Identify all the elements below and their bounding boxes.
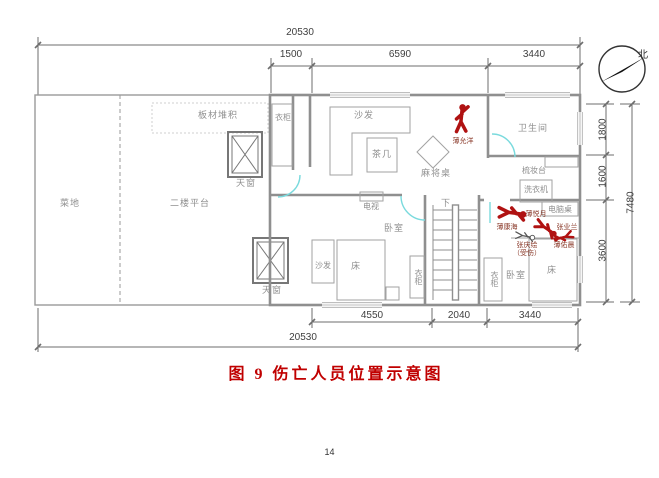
- north-label: 北: [638, 46, 648, 61]
- room-label-bathroom: 卫生间: [503, 123, 563, 133]
- dim-right-total: 7480: [626, 183, 637, 223]
- dim-bottom-total: 20530: [273, 332, 333, 343]
- dim-right-seg-1: 1800: [598, 110, 609, 150]
- skylight-top: [228, 132, 262, 177]
- page-number: 14: [0, 447, 659, 457]
- casualty-name-right: 薄佑晨: [546, 242, 582, 250]
- casualty-name-lying-below: 薄康海: [489, 224, 525, 232]
- room-label-bedroom-left: 卧室: [374, 223, 414, 233]
- label-board-pile: 板材堆积: [188, 110, 248, 120]
- casualty-name-standing: 薄允洋: [441, 138, 485, 146]
- room-label-platform: 二楼平台: [160, 198, 220, 208]
- label-mahjong-table: 麻将桌: [411, 168, 461, 178]
- label-tv: 电视: [351, 202, 391, 212]
- dim-bottom-seg-2: 2040: [439, 310, 479, 321]
- label-dressing-table: 梳妆台: [509, 166, 559, 176]
- casualty-name-lying-right: 薄悦月: [518, 211, 554, 219]
- label-tea-table: 茶几: [362, 149, 402, 159]
- label-stairs-down: 下: [438, 198, 454, 208]
- casualty-figure-standing: [451, 103, 473, 136]
- injured-status: （受伤）: [509, 250, 545, 258]
- stairs: [433, 205, 477, 300]
- label-wardrobe-entry: 衣柜: [268, 113, 298, 123]
- dim-bottom-seg-3: 3440: [510, 310, 550, 321]
- label-sofa-living: 沙发: [344, 110, 384, 120]
- dim-right-seg-3: 3600: [598, 231, 609, 271]
- dim-right-seg-2: 1600: [598, 157, 609, 197]
- label-wardrobe-left: 衣柜: [411, 262, 423, 292]
- label-washing-machine: 洗衣机: [511, 185, 561, 195]
- injured-name: 张庆绘: [509, 242, 545, 250]
- label-bed-left: 床: [346, 261, 366, 271]
- label-skylight-bottom: 天窗: [252, 285, 292, 295]
- dim-top-total: 20530: [270, 27, 330, 38]
- label-bed-right: 床: [542, 265, 562, 275]
- label-skylight-top: 天窗: [226, 178, 266, 188]
- dim-top-seg-1: 1500: [271, 49, 311, 60]
- casualty-name-middle: 张业兰: [549, 224, 585, 232]
- dim-top-seg-3: 3440: [514, 49, 554, 60]
- label-sofa-bedroom: 沙发: [308, 261, 338, 271]
- room-label-bedroom-right: 卧室: [496, 270, 536, 280]
- figure-caption: 图 9 伤亡人员位置示意图: [36, 360, 636, 384]
- dim-top-seg-2: 6590: [380, 49, 420, 60]
- dim-bottom-seg-1: 4550: [352, 310, 392, 321]
- figure-page: 20530 1500 6590 3440 1800 1600 3600 7480…: [0, 0, 659, 478]
- room-label-vegetable-plot: 菜地: [50, 198, 90, 208]
